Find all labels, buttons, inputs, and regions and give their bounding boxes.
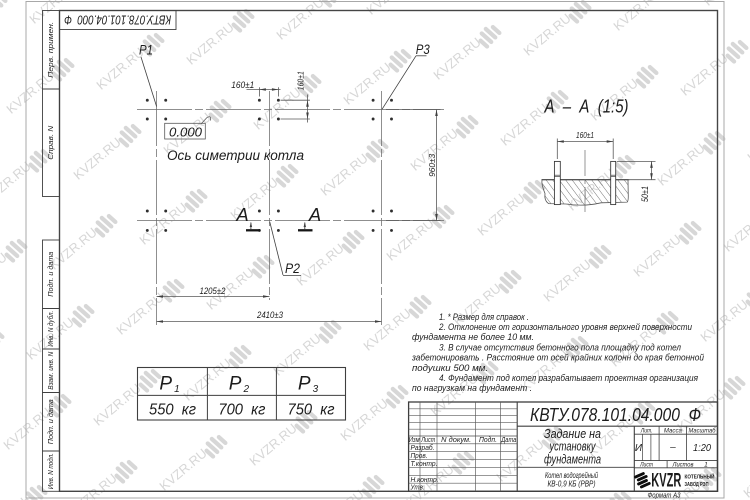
svg-text:КВ-0,9 КБ (РВР): КВ-0,9 КБ (РВР) — [548, 479, 596, 489]
svg-text:2410±3: 2410±3 — [256, 310, 283, 320]
svg-text:N докум.: N докум. — [441, 435, 471, 444]
svg-text:фундамента: фундамента — [544, 451, 601, 466]
svg-text:550 кг: 550 кг — [149, 402, 196, 419]
svg-text:Взам. инв. N: Взам. инв. N — [46, 351, 55, 390]
svg-text:Подп.: Подп. — [479, 435, 497, 444]
svg-text:Подп. и дата: Подп. и дата — [46, 399, 55, 444]
svg-text:А: А — [308, 204, 321, 225]
svg-text:КОТЕЛЬНЫЙ: КОТЕЛЬНЫЙ — [685, 473, 715, 481]
svg-text:160±1: 160±1 — [576, 130, 594, 140]
svg-text:Р3: Р3 — [416, 42, 430, 57]
svg-text:Дата: Дата — [501, 435, 517, 444]
svg-text:Инв. N подл.: Инв. N подл. — [46, 453, 55, 489]
svg-text:Лит.: Лит. — [640, 427, 653, 434]
svg-text:И: И — [635, 443, 643, 454]
svg-text:Листов: Листов — [672, 461, 694, 468]
svg-text:Р1: Р1 — [139, 43, 153, 58]
svg-text:Лист: Лист — [639, 461, 653, 468]
svg-text:А: А — [235, 204, 248, 225]
svg-text:Утв.: Утв. — [410, 483, 425, 492]
svg-text:Р2: Р2 — [285, 261, 300, 276]
svg-text:КВТУ.078.101.04.000 Ф: КВТУ.078.101.04.000 Ф — [64, 13, 171, 27]
svg-text:Масса: Масса — [664, 427, 682, 434]
svg-text:1205±2: 1205±2 — [200, 286, 226, 296]
svg-text:960±3: 960±3 — [427, 153, 437, 176]
svg-text:Инв. N дубл.: Инв. N дубл. — [46, 311, 55, 347]
svg-text:по нагрузкам на фундамент .: по нагрузкам на фундамент . — [412, 383, 532, 394]
svg-text:ЗАВОД РЭП: ЗАВОД РЭП — [685, 482, 709, 488]
svg-text:0.000: 0.000 — [169, 124, 203, 139]
svg-text:1:20: 1:20 — [693, 443, 711, 454]
svg-text:А – А (1:5): А – А (1:5) — [544, 97, 629, 117]
svg-text:KVZR: KVZR — [651, 471, 681, 492]
svg-text:Формат А3: Формат А3 — [648, 490, 682, 499]
svg-text:Т.контр.: Т.контр. — [411, 459, 438, 468]
svg-text:КВТУ.078.101.04.000 Ф: КВТУ.078.101.04.000 Ф — [530, 404, 701, 425]
svg-text:700 кг: 700 кг — [218, 402, 265, 419]
svg-text:750 кг: 750 кг — [288, 402, 335, 419]
svg-text:Ось симетрии котла: Ось симетрии котла — [167, 148, 304, 163]
svg-text:160±1: 160±1 — [231, 80, 254, 90]
svg-text:Перв. примен.: Перв. примен. — [46, 22, 55, 78]
svg-text:Подп. и дата: Подп. и дата — [46, 252, 55, 297]
svg-text:160±1: 160±1 — [296, 71, 305, 90]
svg-text:50±1: 50±1 — [640, 186, 650, 202]
svg-text:1: 1 — [704, 461, 708, 468]
svg-text:Справ. N: Справ. N — [46, 125, 55, 160]
svg-text:Масштаб: Масштаб — [689, 426, 716, 434]
svg-text:–: – — [669, 442, 676, 453]
